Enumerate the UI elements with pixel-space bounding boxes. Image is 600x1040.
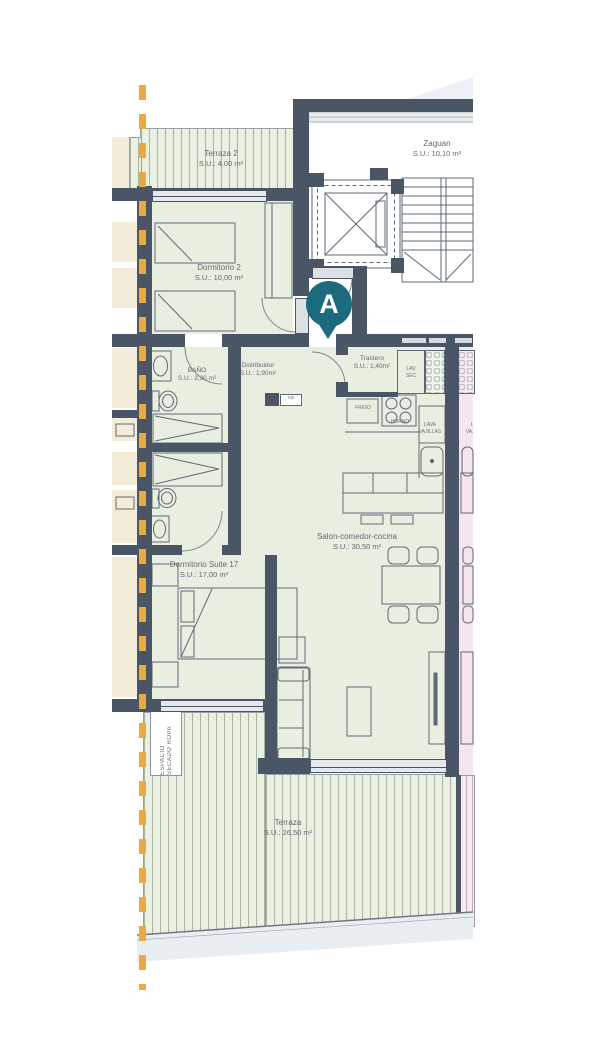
sofa — [277, 667, 310, 762]
elevator-pillar — [370, 168, 388, 180]
wardrobe-dormitorio2 — [265, 203, 292, 298]
coffee-table — [347, 687, 371, 736]
wall-segment — [265, 555, 277, 712]
unit-marker-label: A — [306, 281, 352, 327]
room-label-distribuidor: DistribuidorS.U.: 1,90m² — [208, 362, 308, 379]
room-label-suite: Dormitorio Suite 17S.U.: 17,00 m² — [144, 560, 264, 580]
kitchen-island — [343, 473, 443, 524]
sliding-door-salon — [310, 759, 447, 773]
roof-slope-shade — [408, 77, 473, 99]
room-label-terraza: TerrazaS.U.: 26,50 m² — [238, 818, 338, 838]
wall-segment — [445, 347, 459, 777]
neighbor-wall-stub — [112, 410, 137, 418]
vent-marker — [429, 336, 446, 345]
property-boundary-line — [139, 85, 146, 990]
unit-marker-a[interactable]: A — [306, 281, 352, 343]
window-suite — [160, 700, 264, 712]
wardrobe-closet-2 — [153, 453, 222, 486]
bed-single-1 — [155, 223, 235, 263]
neighbor-wall-stub — [112, 545, 137, 555]
label-lavavajillas: LAVAVAJILLAS — [408, 422, 452, 436]
kitchen-counter — [345, 406, 445, 478]
neighbor-wall-stub — [112, 188, 137, 201]
dining-table — [382, 547, 440, 623]
neighbor-fixture-fragments — [116, 424, 134, 509]
room-label-salon: Salon-comedor-cocinaS.U.: 30,50 m² — [297, 532, 417, 552]
wall-segment — [265, 393, 279, 406]
facade-slant — [137, 912, 473, 1040]
room-label-trastero: TrasteroS.U.: 1,40m² — [341, 355, 403, 372]
room-label-dormitorio2: Dormitorio 2S.U.: 10,00 m² — [169, 263, 269, 283]
vent-marker — [455, 336, 472, 345]
room-label-zaguan: ZaguanS.U.: 10,10 m² — [387, 139, 487, 159]
entrance-door-lintel — [312, 267, 354, 279]
wall-segment — [222, 545, 241, 555]
wall-segment — [352, 266, 367, 336]
label-lavavajillas-neighbor: LAVAVAJILLAS — [460, 422, 473, 438]
elevator-pillar — [391, 258, 404, 273]
toilet — [152, 391, 177, 411]
wall-segment — [293, 99, 473, 112]
tv-unit — [429, 652, 445, 744]
elevator-pillar — [304, 173, 324, 187]
neighbor-furniture-fragments — [461, 447, 473, 744]
wall-segment — [258, 758, 310, 774]
unit-marker-pointer — [318, 323, 338, 339]
wall-segment — [336, 392, 398, 397]
neighbor-wall-stub — [112, 699, 137, 712]
wall-segment — [222, 334, 309, 347]
wall-segment — [336, 347, 348, 355]
elevator — [312, 180, 400, 268]
label-lav-sec: LAVSEC — [396, 366, 426, 380]
floor-plan: Terraza 2S.U.: 4.00 m² ZaguanS.U.: 10,10… — [0, 0, 600, 1040]
facade-band-top — [309, 112, 473, 123]
elevator-pillar — [391, 179, 404, 194]
wall-segment — [265, 712, 277, 759]
toilet-suite — [152, 489, 176, 509]
label-cb-box: CB — [280, 394, 302, 406]
vent-marker — [402, 336, 426, 345]
room-label-terraza2: Terraza 2S.U.: 4.00 m² — [171, 149, 271, 169]
staircase — [402, 178, 473, 282]
sink-suite — [150, 516, 169, 542]
bed-single-2 — [155, 291, 235, 331]
window-dormitorio2 — [152, 190, 267, 202]
wardrobe-closet-1 — [153, 414, 222, 443]
kitchen-sink — [421, 447, 443, 476]
wall-segment — [137, 443, 237, 452]
label-frigo: FRIGO — [346, 405, 380, 412]
neighbor-wall-stub — [112, 334, 137, 347]
